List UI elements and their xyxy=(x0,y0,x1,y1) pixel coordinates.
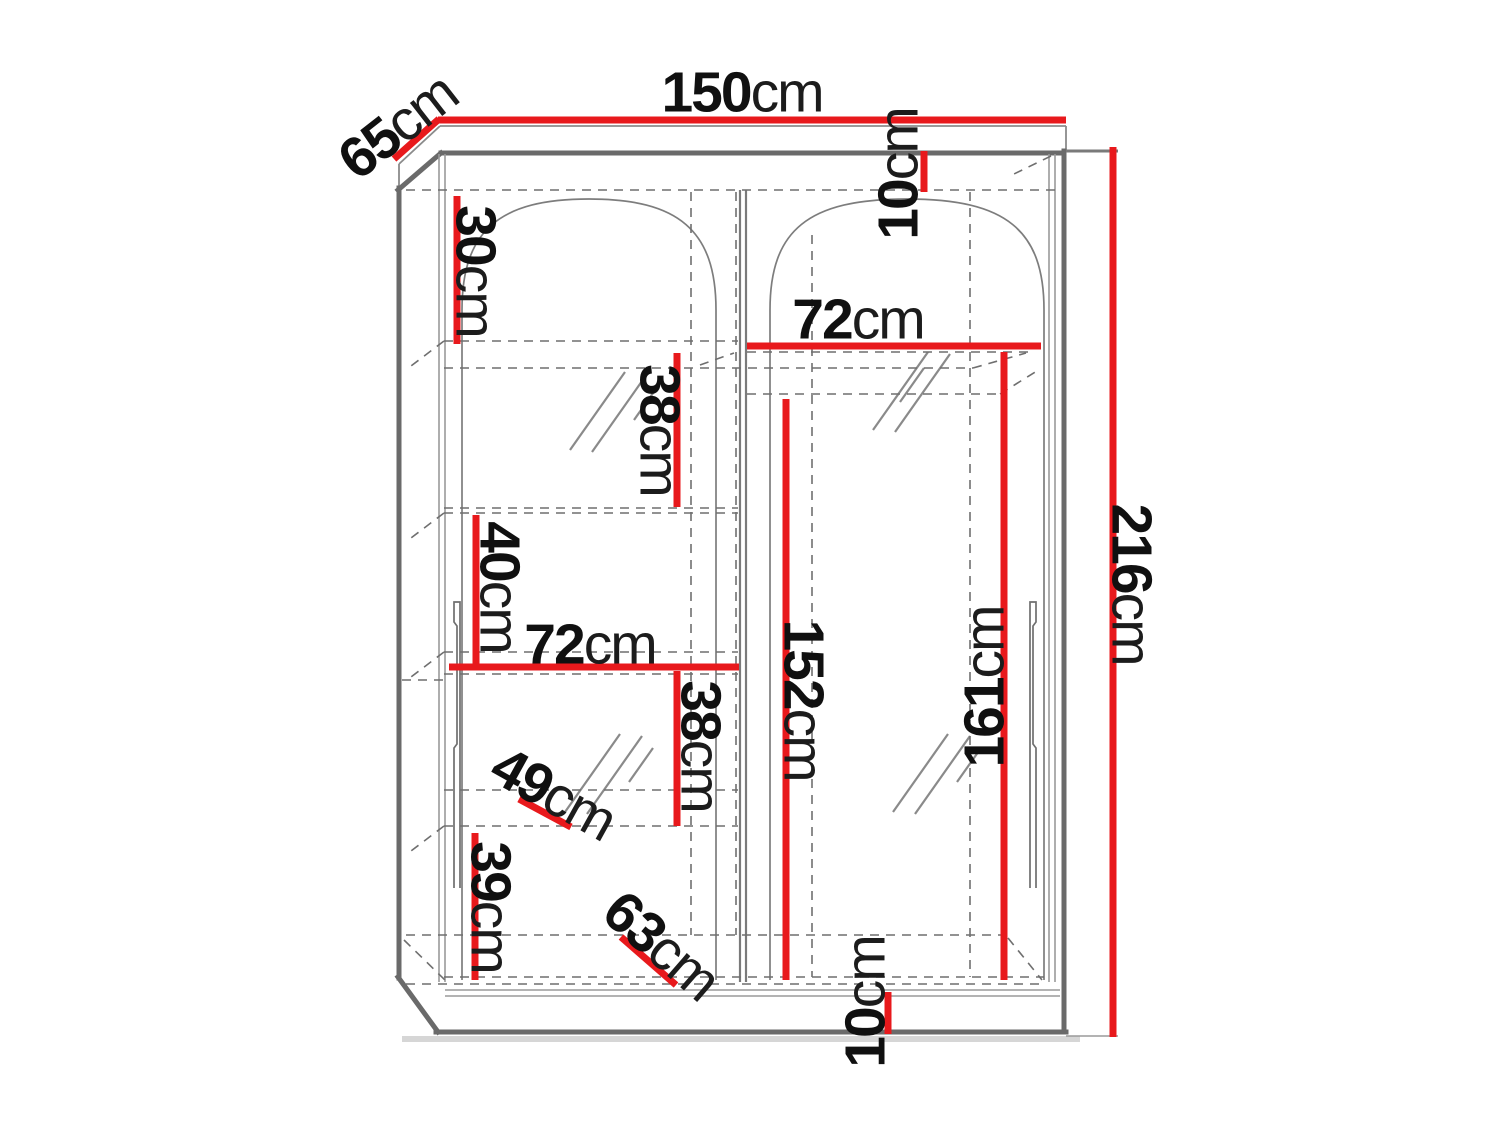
dim-unit: cm xyxy=(444,265,508,337)
dim-value: 152 xyxy=(772,619,836,708)
dim-value: 150 xyxy=(661,61,750,125)
arched-mirror-frames xyxy=(462,199,1044,980)
dim-unit: cm xyxy=(953,606,1017,678)
dim-label-height: 216cm xyxy=(1103,503,1160,664)
dim-unit: cm xyxy=(669,740,733,812)
dim-label-left-lower-shelf-spacing: 38cm xyxy=(672,680,729,811)
dim-label-width: 150cm xyxy=(661,65,822,122)
dim-label-right-hanging-height-front: 152cm xyxy=(775,619,832,780)
wardrobe-line-art xyxy=(0,0,1500,1125)
dim-value: 39 xyxy=(459,841,523,900)
dim-label-left-upper-shelf-spacing: 38cm xyxy=(631,364,688,495)
dim-label-right-hanging-height-back: 161cm xyxy=(957,606,1014,767)
dim-unit: cm xyxy=(628,424,692,496)
dim-label-plinth-height: 10cm xyxy=(838,936,895,1067)
dim-value: 161 xyxy=(953,678,1017,767)
dim-value: 10 xyxy=(834,1008,898,1067)
dim-unit: cm xyxy=(852,288,924,352)
dim-label-left-compartment-width: 72cm xyxy=(524,617,655,674)
dim-value: 40 xyxy=(468,521,532,580)
center-divider xyxy=(740,190,746,982)
dim-value: 72 xyxy=(792,288,851,352)
dim-value: 30 xyxy=(444,205,508,264)
dim-value: 10 xyxy=(867,180,931,239)
dim-unit: cm xyxy=(1100,593,1164,665)
dim-unit: cm xyxy=(468,581,532,653)
mirror-hatch-right-upper xyxy=(873,352,950,432)
dim-label-top-shelf-height: 10cm xyxy=(871,108,928,239)
right-door-handle xyxy=(1030,602,1036,888)
dim-value: 72 xyxy=(524,613,583,677)
dim-unit: cm xyxy=(584,613,656,677)
dim-value: 38 xyxy=(628,364,692,423)
dim-value: 216 xyxy=(1100,503,1164,592)
dim-unit: cm xyxy=(751,61,823,125)
dim-unit: cm xyxy=(834,936,898,1008)
dim-label-right-compartment-width: 72cm xyxy=(792,292,923,349)
dim-label-left-top-compartment: 30cm xyxy=(447,205,504,336)
wardrobe-dimension-diagram: 150cm 65cm 10cm 72cm 30cm 38cm 40cm 72cm… xyxy=(0,0,1500,1125)
dim-label-left-middle-shelf-spacing: 40cm xyxy=(471,521,528,652)
top-face-edges xyxy=(399,126,1066,189)
dim-unit: cm xyxy=(867,108,931,180)
door-frame-lines xyxy=(439,154,1060,996)
dim-label-left-bottom-compartment: 39cm xyxy=(462,841,519,972)
dim-value: 38 xyxy=(669,680,733,739)
dim-unit: cm xyxy=(772,709,836,781)
dim-unit: cm xyxy=(459,901,523,973)
